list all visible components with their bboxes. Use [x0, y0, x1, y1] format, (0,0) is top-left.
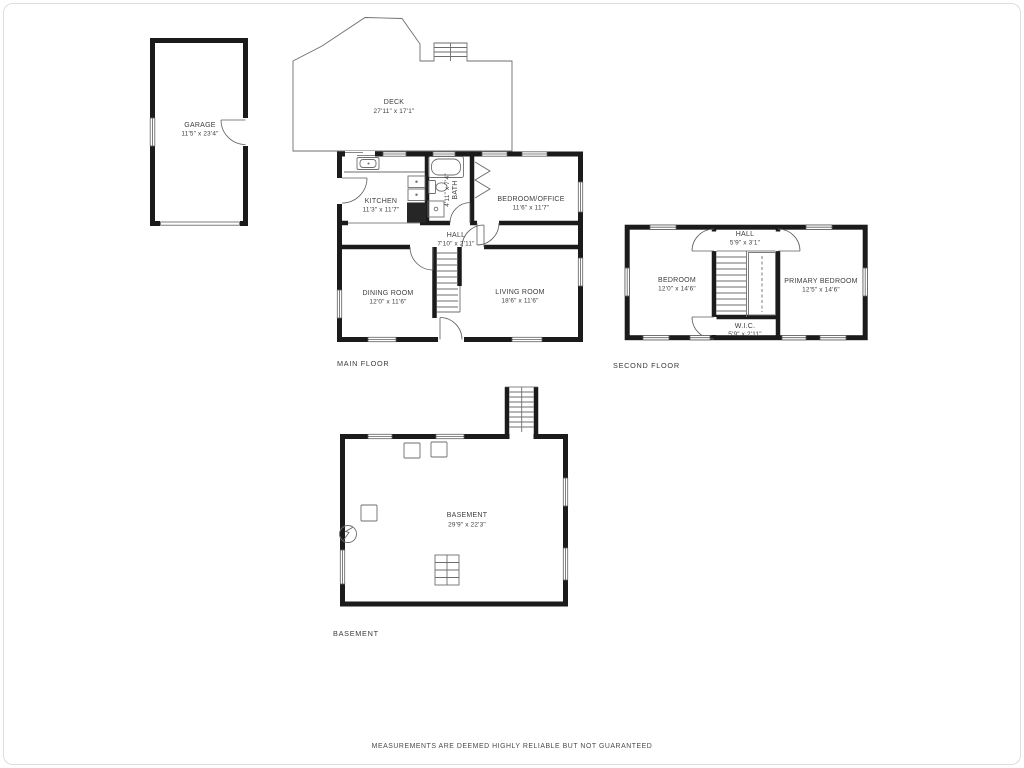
room-dims-bath: 4'11" x 7'4" — [444, 173, 451, 206]
basement-window-right-1 — [563, 478, 567, 506]
primary-window-right — [863, 268, 867, 296]
room-dims-living: 18'6" x 11'6" — [501, 298, 538, 305]
room-dims-kitchen: 11'3" x 11'7" — [363, 207, 400, 214]
garage-overhead-door — [160, 221, 240, 228]
dining-window-bottom — [368, 337, 396, 341]
room-dims-deck: 27'11" x 17'1" — [374, 108, 415, 115]
kitchen-slider-door — [345, 151, 375, 157]
dining-window-left — [337, 290, 341, 318]
bedroom2-window-top — [650, 225, 676, 229]
room-dims-bedroom-office: 11'6" x 11'7" — [513, 205, 550, 212]
room-dims-bedroom2: 12'0" x 14'6" — [658, 286, 696, 293]
room-label-wic: W.I.C. — [735, 323, 756, 330]
floor-label-basement: BASEMENT — [333, 629, 379, 638]
room-label-basement: BASEMENT — [447, 512, 488, 519]
room-label-primary: PRIMARY BEDROOM — [784, 278, 858, 285]
room-dims-hall-main: 7'10" x 2'11" — [437, 241, 474, 248]
fridge — [407, 203, 426, 223]
bedroom2-window-bottom-2 — [690, 336, 710, 340]
room-label-hall-main: HALL — [447, 232, 466, 239]
room-dims-garage: 11'5" x 23'4" — [181, 131, 218, 138]
living-window-bottom — [512, 337, 542, 341]
room-label-hall-second: HALL — [736, 231, 755, 238]
disclaimer: MEASUREMENTS ARE DEEMED HIGHLY RELIABLE … — [372, 743, 653, 750]
floor-label-second: SECOND FLOOR — [613, 361, 680, 370]
room-label-bath: BATH — [452, 180, 459, 199]
room-label-living: LIVING ROOM — [495, 289, 544, 296]
bath-window — [433, 152, 455, 156]
bedroom-office-window-right — [578, 182, 582, 212]
basement-window-top-2 — [436, 434, 464, 438]
room-dims-primary: 12'5" x 14'6" — [802, 287, 840, 294]
floor-label-main: MAIN FLOOR — [337, 359, 389, 368]
room-dims-wic: 5'9" x 2'11" — [728, 331, 761, 338]
floor-plan-canvas: GARAGE 11'5" x 23'4" DECK 27'11" x 17'1" — [0, 0, 1024, 768]
room-dims-hall-second: 5'9" x 3'1" — [730, 240, 760, 247]
room-label-deck: DECK — [384, 99, 405, 106]
room-label-bedroom2: BEDROOM — [658, 277, 696, 284]
kitchen-window — [383, 152, 406, 156]
room-label-bedroom-office: BEDROOM/OFFICE — [497, 196, 564, 203]
basement-window-left — [340, 550, 344, 584]
primary-window-top — [806, 225, 832, 229]
room-label-kitchen: KITCHEN — [365, 198, 397, 205]
room-label-dining: DINING ROOM — [363, 290, 414, 297]
room-dims-dining: 12'0" x 11'6" — [369, 299, 406, 306]
room-label-garage: GARAGE — [184, 122, 216, 129]
bedroom2-window-bottom-1 — [643, 336, 669, 340]
garage-window — [150, 118, 155, 146]
primary-window-bottom-1 — [782, 336, 806, 340]
living-window-right — [578, 258, 582, 286]
bedroom-office-window-2 — [522, 152, 547, 156]
basement-window-right-2 — [563, 548, 567, 580]
primary-window-bottom-2 — [820, 336, 846, 340]
room-dims-basement: 29'9" x 22'3" — [448, 522, 486, 529]
bedroom2-window-left — [625, 268, 629, 296]
bedroom-office-window-1 — [482, 152, 507, 156]
basement-window-top-1 — [368, 434, 392, 438]
